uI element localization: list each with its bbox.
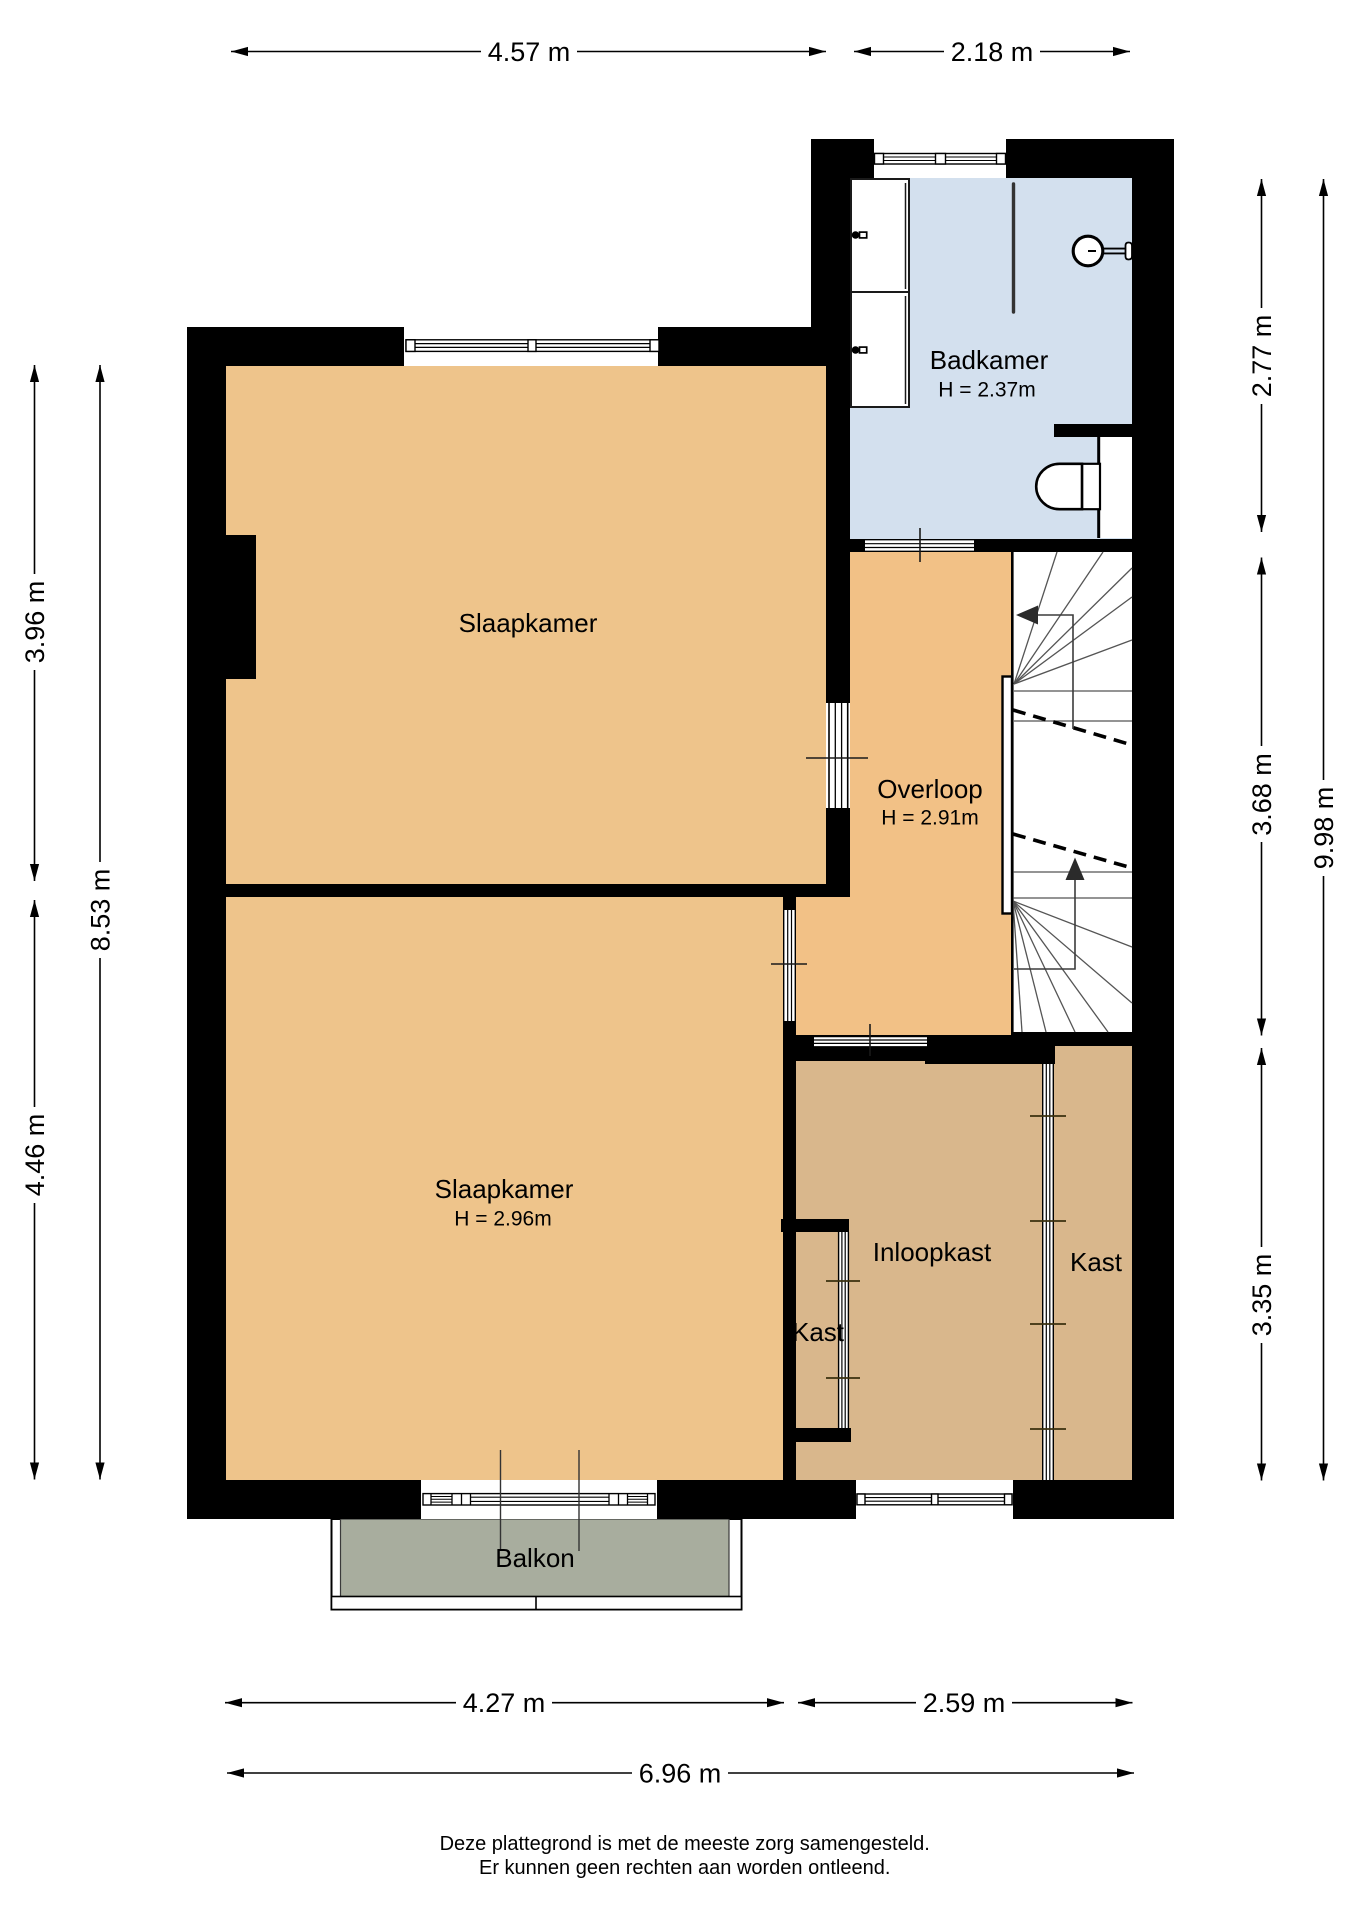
svg-text:2.77 m: 2.77 m bbox=[1247, 315, 1277, 398]
svg-text:Overloop: Overloop bbox=[877, 774, 983, 804]
svg-text:6.96 m: 6.96 m bbox=[639, 1759, 722, 1789]
svg-text:9.98 m: 9.98 m bbox=[1309, 787, 1339, 870]
svg-text:Balkon: Balkon bbox=[495, 1543, 575, 1573]
svg-text:Kast: Kast bbox=[1070, 1247, 1123, 1277]
svg-text:Kast: Kast bbox=[792, 1317, 845, 1347]
svg-text:3.96 m: 3.96 m bbox=[20, 581, 50, 664]
svg-text:4.46 m: 4.46 m bbox=[20, 1114, 50, 1197]
svg-text:3.35 m: 3.35 m bbox=[1247, 1254, 1277, 1337]
svg-text:2.18 m: 2.18 m bbox=[951, 37, 1034, 67]
svg-text:2.59 m: 2.59 m bbox=[923, 1688, 1006, 1718]
svg-text:3.68 m: 3.68 m bbox=[1247, 753, 1277, 836]
svg-text:4.27 m: 4.27 m bbox=[463, 1688, 546, 1718]
svg-text:Deze plattegrond is met de mee: Deze plattegrond is met de meeste zorg s… bbox=[440, 1833, 930, 1855]
svg-text:H = 2.96m: H = 2.96m bbox=[454, 1208, 551, 1231]
svg-text:Slaapkamer: Slaapkamer bbox=[435, 1174, 574, 1204]
svg-text:Badkamer: Badkamer bbox=[930, 345, 1049, 375]
svg-text:Inloopkast: Inloopkast bbox=[873, 1237, 992, 1267]
svg-text:H = 2.91m: H = 2.91m bbox=[881, 807, 978, 830]
svg-text:8.53 m: 8.53 m bbox=[86, 869, 116, 952]
svg-text:Er kunnen geen rechten aan wor: Er kunnen geen rechten aan worden ontlee… bbox=[479, 1857, 890, 1879]
svg-text:H = 2.37m: H = 2.37m bbox=[938, 379, 1035, 402]
svg-text:Slaapkamer: Slaapkamer bbox=[459, 608, 598, 638]
svg-text:4.57 m: 4.57 m bbox=[488, 37, 571, 67]
